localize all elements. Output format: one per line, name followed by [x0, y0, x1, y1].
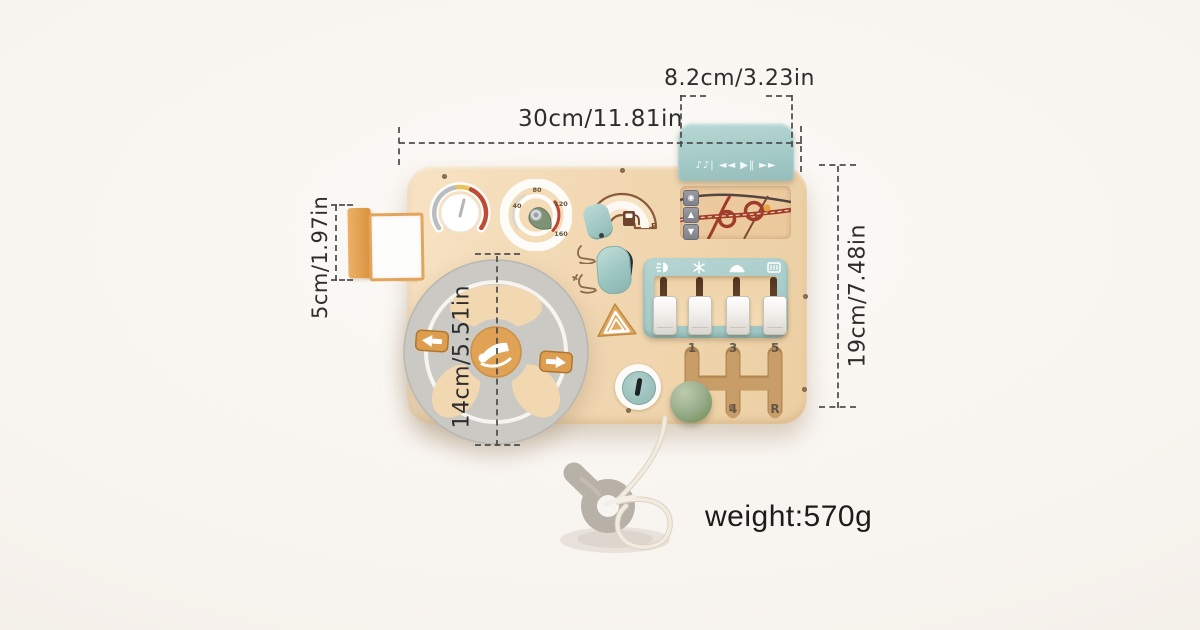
switch-knob [763, 296, 787, 335]
up-arrow-icon: ▲ [683, 207, 699, 223]
turn-left-button [415, 330, 448, 352]
dimension-tick [819, 406, 856, 408]
tachometer-gauge [428, 181, 492, 245]
screw [803, 294, 808, 299]
switch-knob [726, 296, 750, 335]
dimension-tick [800, 126, 802, 172]
gear-label-3: 3 [729, 341, 737, 355]
headlight-icon [655, 261, 673, 274]
screw [802, 387, 807, 392]
screw [620, 168, 625, 173]
fuel-lever-pivot [599, 233, 604, 238]
dimension-tick [331, 279, 353, 281]
dimension-mirror-height: 5cm/1.97in [308, 207, 332, 319]
dimension-tick [475, 444, 520, 446]
dimension-line [335, 205, 337, 281]
speed-tick-160: 160 [554, 230, 568, 238]
dimension-board-width: 30cm/11.81in [399, 106, 802, 132]
dimension-tick [398, 127, 400, 165]
dimension-tick [475, 253, 520, 255]
pointer-pivot-center [534, 213, 539, 218]
dimension-tick [680, 95, 682, 147]
speed-tick-80: 80 [532, 186, 541, 194]
screw [442, 174, 447, 179]
map-pin-icon [764, 205, 771, 212]
weight-label: weight:570g [705, 500, 872, 534]
dimension-tick [819, 164, 856, 166]
dimension-radio-width: 8.2cm/3.23in [664, 66, 808, 91]
gear-label-r: R [770, 402, 779, 416]
dimension-tick [791, 95, 793, 147]
media-control-icons: ♪♪| ◄◄ ▶‖ ►► [695, 160, 776, 181]
product-photo-stage: 40 80 120 160 F ♪♪| ◄◄ ▶‖ ►► ◉ ▲ ▼ [0, 0, 1200, 630]
ignition-key-and-string [520, 400, 750, 570]
dimension-line [496, 256, 498, 446]
dimension-board-height: 19cm/7.48in [846, 236, 871, 368]
switch-knob [653, 296, 677, 335]
dimension-line [680, 95, 706, 97]
speed-tick-120: 120 [554, 200, 568, 208]
speed-tick-40: 40 [512, 202, 521, 210]
gear-label-1: 1 [688, 341, 696, 355]
turn-right-button [539, 351, 572, 373]
gauge-yellow-zone [456, 187, 472, 189]
down-arrow-icon: ▼ [683, 224, 699, 240]
fuel-full-label: F [651, 222, 656, 231]
handbrake-lever [595, 245, 632, 295]
dimension-line [399, 142, 802, 144]
gear-label-5: 5 [771, 341, 779, 355]
dimension-tick [331, 204, 353, 206]
rear-defrost-icon [765, 261, 783, 274]
dimension-wheel-diameter: 14cm/5.51in [450, 297, 475, 429]
dimension-line [766, 95, 792, 97]
hazard-triangle-button [594, 300, 638, 340]
car-icon [728, 261, 746, 274]
snowflake-icon [690, 261, 708, 274]
location-pin-icon: ◉ [683, 190, 699, 206]
dimension-line [837, 166, 839, 408]
switch-knob [688, 296, 712, 335]
